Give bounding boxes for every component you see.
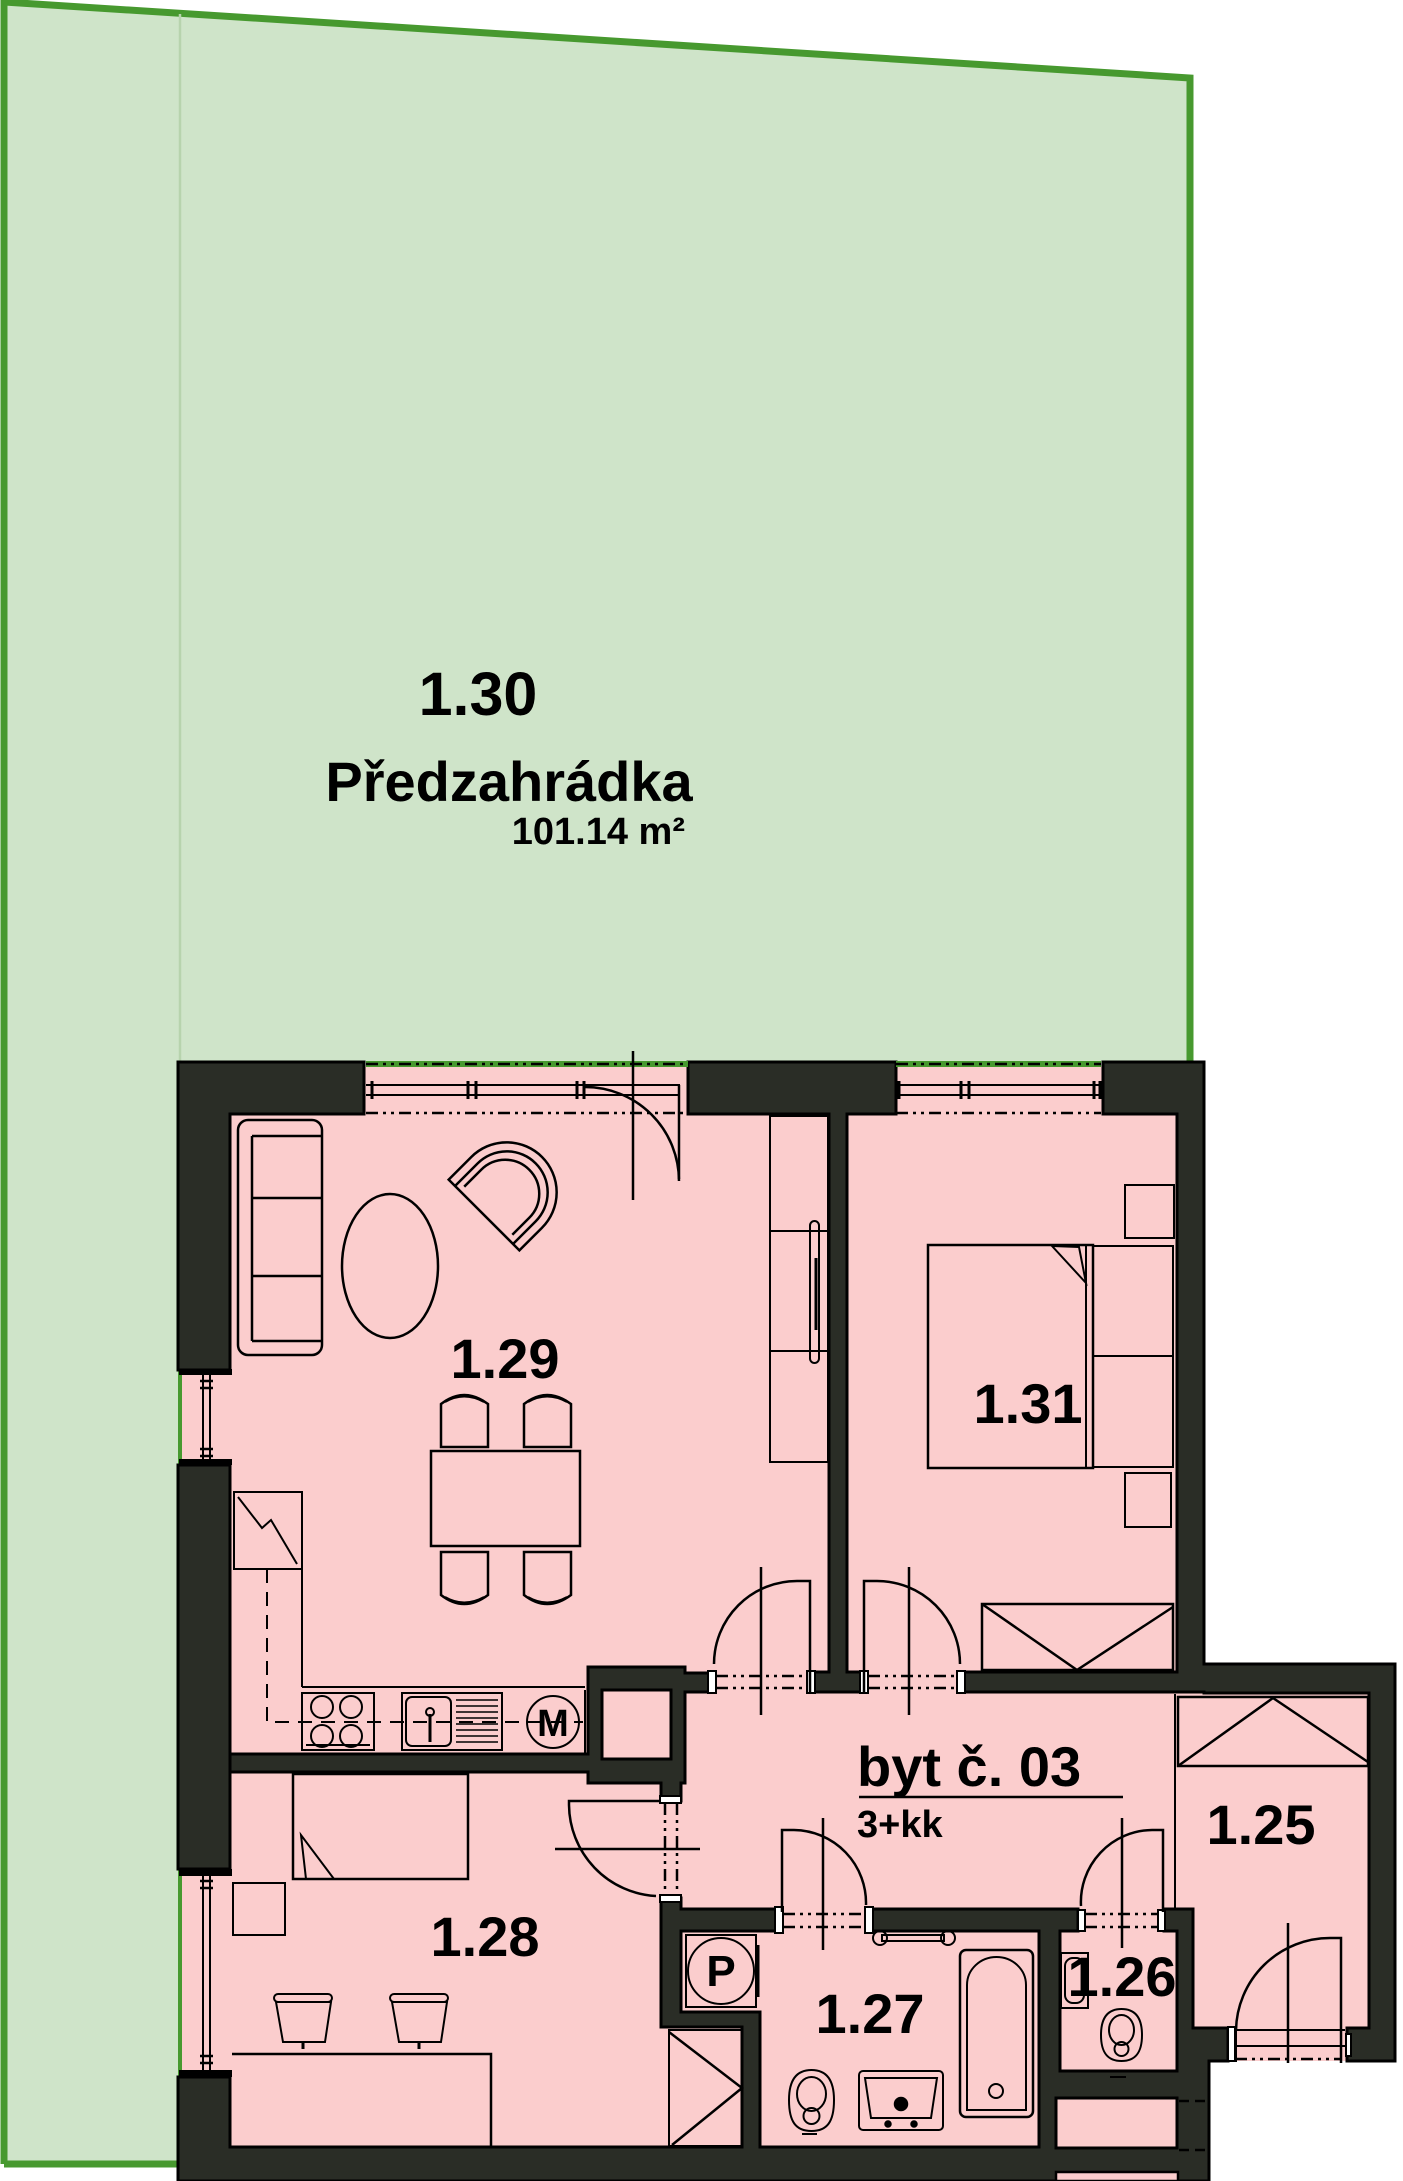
svg-text:1.26: 1.26 [1068,1945,1177,2008]
svg-text:1.30: 1.30 [419,660,538,728]
svg-text:1.27: 1.27 [816,1982,925,2045]
svg-text:M: M [537,1703,569,1745]
svg-text:1.25: 1.25 [1207,1793,1316,1856]
svg-text:Předzahrádka: Předzahrádka [325,750,693,813]
svg-text:1.28: 1.28 [431,1905,540,1968]
svg-text:1.29: 1.29 [451,1327,560,1390]
svg-text:P: P [706,1947,735,1996]
svg-text:byt č. 03: byt č. 03 [857,1735,1081,1798]
svg-text:3+kk: 3+kk [857,1804,943,1846]
svg-text:101.14 m²: 101.14 m² [512,811,685,853]
svg-text:1.31: 1.31 [974,1372,1083,1435]
